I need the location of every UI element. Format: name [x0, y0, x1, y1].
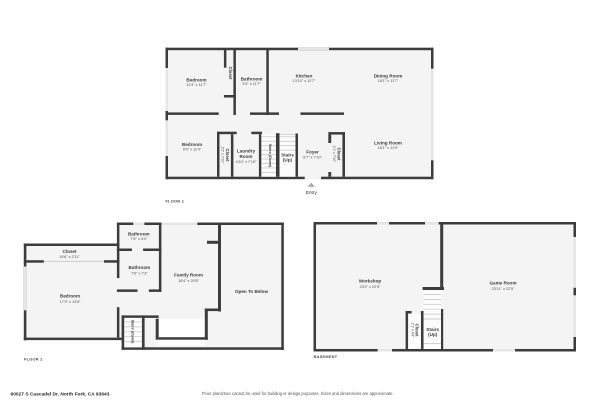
svg-text:23'11" x 22'5": 23'11" x 22'5" [492, 287, 515, 291]
svg-text:3'3" x 11'7": 3'3" x 11'7" [242, 82, 261, 86]
svg-text:FLOOR 2: FLOOR 2 [24, 357, 43, 362]
svg-text:23'2" x 22'5": 23'2" x 22'5" [360, 285, 381, 289]
svg-text:Laundry: Laundry [237, 149, 256, 154]
svg-text:Closet: Closet [228, 67, 233, 80]
svg-text:Kitchen: Kitchen [296, 74, 313, 79]
svg-text:Closet: Closet [62, 249, 77, 254]
svg-text:2'1" x 7'10": 2'1" x 7'10" [332, 146, 336, 164]
svg-text:Bathroom: Bathroom [129, 265, 151, 270]
svg-text:5'7" x 7'10": 5'7" x 7'10" [303, 156, 322, 160]
svg-text:13'10" x 11'7": 13'10" x 11'7" [293, 79, 316, 83]
svg-text:Closet: Closet [337, 148, 342, 161]
svg-text:Stairs (Down): Stairs (Down) [131, 320, 135, 345]
svg-text:2'2" x 7'10": 2'2" x 7'10" [221, 147, 225, 165]
svg-text:Foyer: Foyer [306, 150, 319, 155]
svg-text:Family Room: Family Room [174, 273, 203, 278]
svg-text:Bathroom: Bathroom [128, 232, 150, 237]
svg-text:12'4" x 11'7": 12'4" x 11'7" [186, 83, 207, 87]
svg-text:7'6" x 4'4": 7'6" x 4'4" [130, 237, 147, 241]
svg-text:Dining Room: Dining Room [374, 74, 403, 79]
svg-text:2'1" x 4'9": 2'1" x 4'9" [410, 323, 414, 339]
svg-text:Bedroom: Bedroom [182, 142, 202, 147]
svg-text:18'4" x 20'8": 18'4" x 20'8" [178, 279, 199, 283]
svg-text:4'10" x 7'10": 4'10" x 7'10" [236, 160, 257, 164]
svg-text:Game Room: Game Room [489, 281, 516, 286]
svg-text:Floor plans/tour cannot be use: Floor plans/tour cannot be used for buil… [202, 391, 394, 396]
svg-text:16'1" x 11'9": 16'1" x 11'9" [378, 146, 399, 150]
svg-text:9'0" x 11'4": 9'0" x 11'4" [183, 148, 202, 152]
svg-text:17'9" x 13'8": 17'9" x 13'8" [60, 300, 81, 304]
svg-text:Bedroom: Bedroom [186, 78, 206, 83]
svg-text:Bedroom: Bedroom [60, 294, 80, 299]
svg-text:Workshop: Workshop [359, 279, 382, 284]
svg-text:(Up): (Up) [283, 158, 293, 163]
svg-text:Stairs (Down): Stairs (Down) [268, 144, 272, 169]
svg-text:60027 S Cascadel Dr, North For: 60027 S Cascadel Dr, North Fork, CA 9364… [11, 391, 110, 397]
svg-text:Open To Below: Open To Below [235, 289, 269, 294]
svg-text:Entry: Entry [306, 190, 318, 196]
svg-text:Bathroom: Bathroom [241, 77, 263, 82]
svg-text:Room: Room [239, 154, 252, 159]
svg-text:16'6" x 2'11": 16'6" x 2'11" [59, 255, 80, 259]
svg-text:Living Room: Living Room [374, 141, 402, 146]
svg-text:BASEMENT: BASEMENT [314, 354, 338, 359]
svg-text:(Up): (Up) [428, 332, 438, 337]
svg-text:16'1" x 11'7": 16'1" x 11'7" [378, 79, 399, 83]
svg-text:7'6" x 7'3": 7'6" x 7'3" [131, 271, 148, 275]
svg-text:FLOOR 1: FLOOR 1 [166, 199, 185, 204]
